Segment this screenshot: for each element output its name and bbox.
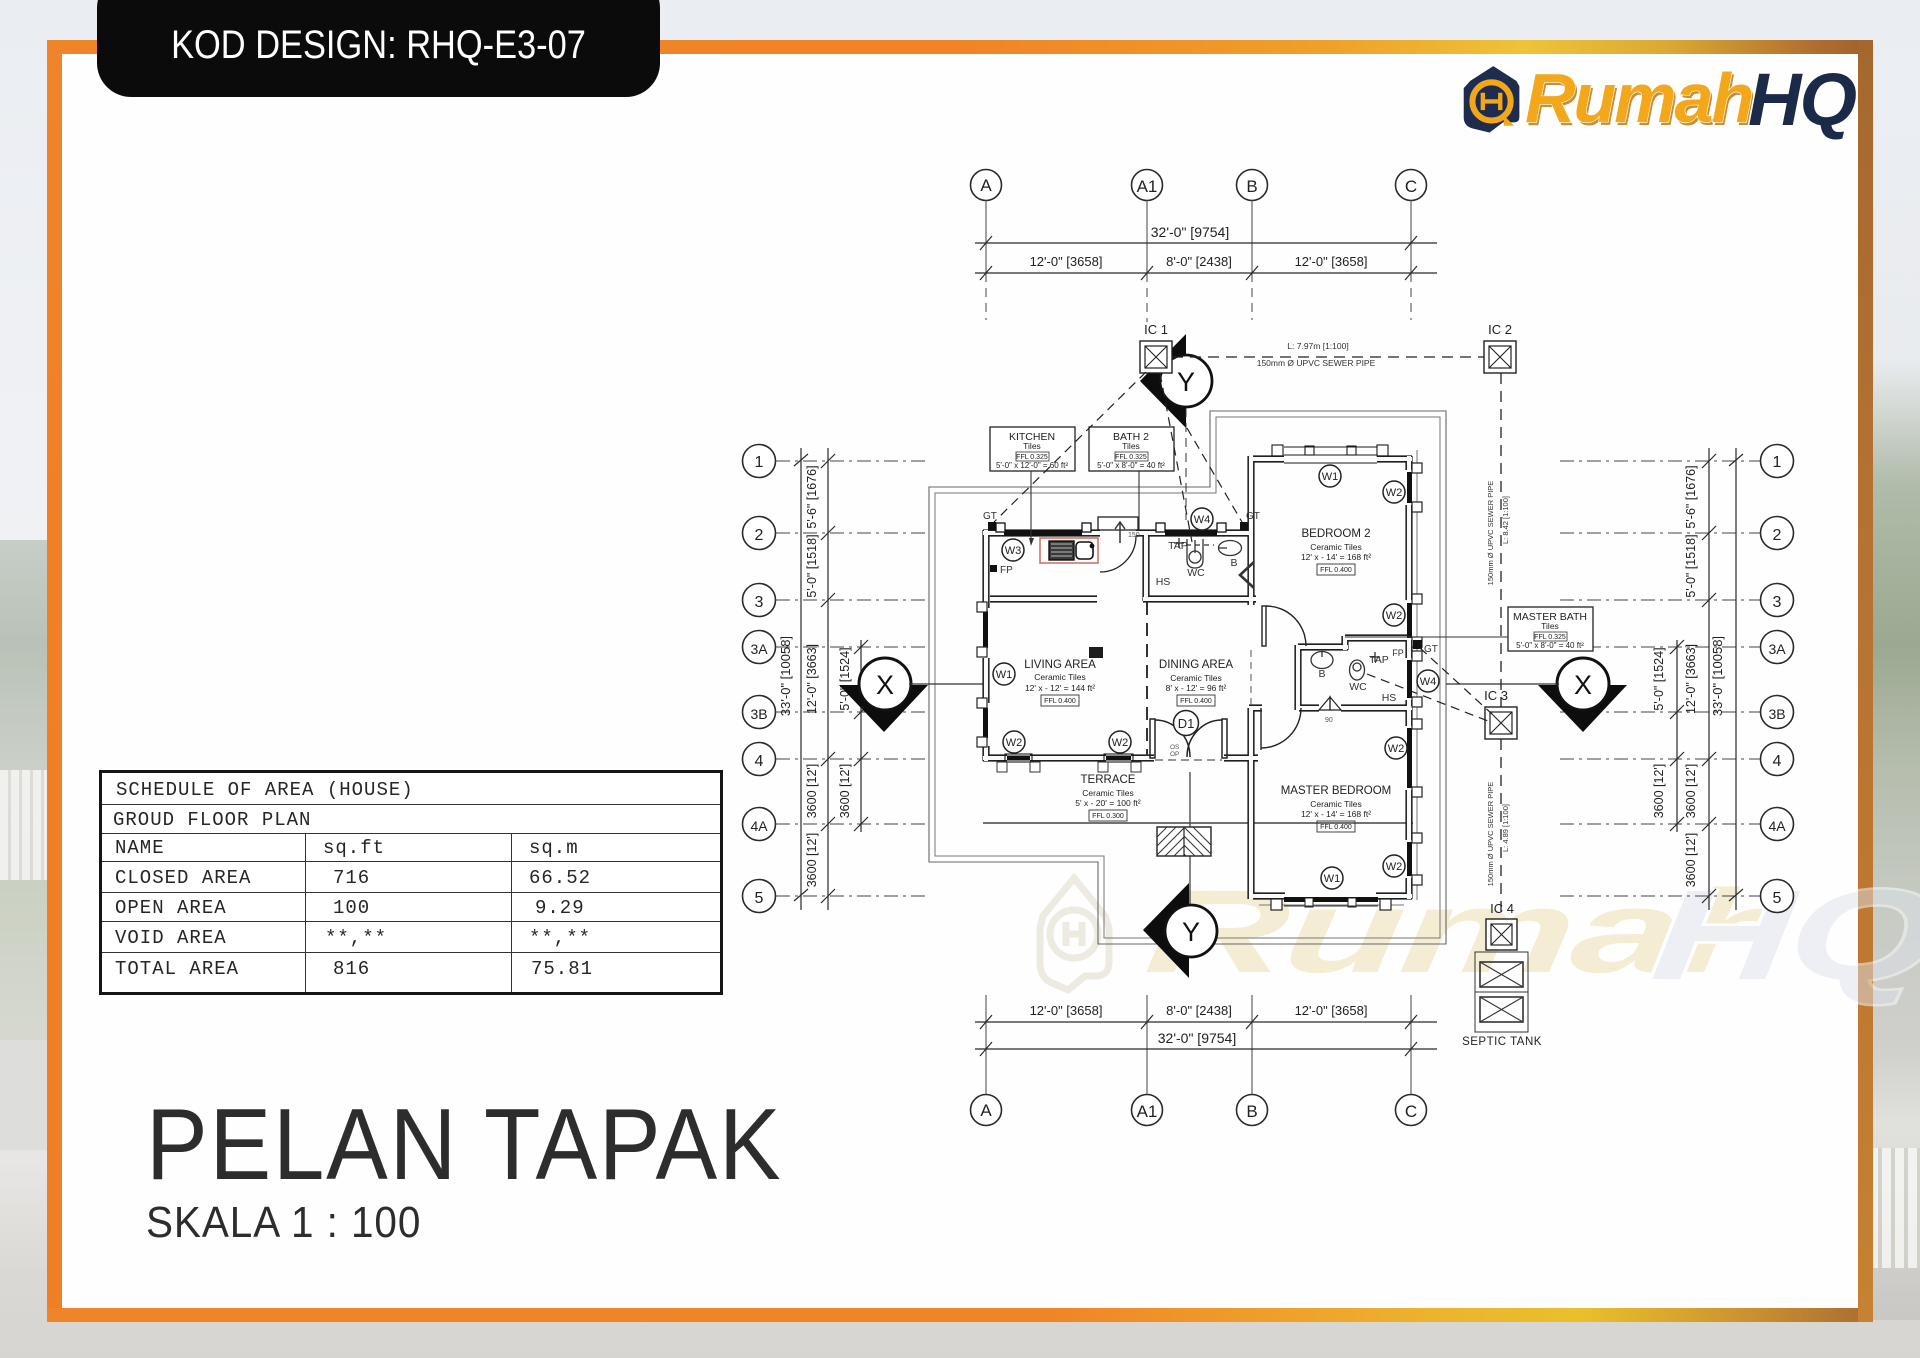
svg-text:3: 3 [755,594,764,611]
svg-text:12' x - 14' = 168 ft²: 12' x - 14' = 168 ft² [1301,809,1371,819]
svg-text:DINING AREA: DINING AREA [1159,659,1233,671]
svg-text:C: C [1405,177,1417,196]
svg-text:GT: GT [983,511,997,522]
svg-text:12' x - 12' = 144 ft²: 12' x - 12' = 144 ft² [1025,683,1095,693]
svg-text:5' x - 20' = 100 ft²: 5' x - 20' = 100 ft² [1075,798,1141,808]
svg-text:4: 4 [1773,753,1782,770]
svg-text:Y: Y [1177,367,1195,397]
svg-text:W2: W2 [1112,737,1129,749]
svg-text:33'-0" [10058]: 33'-0" [10058] [1710,636,1725,716]
svg-text:Tiles: Tiles [1122,441,1140,451]
svg-text:TERRACE: TERRACE [1081,774,1136,786]
svg-text:5'-0" [1524]: 5'-0" [1524] [838,647,852,710]
svg-text:IC 4: IC 4 [1490,901,1514,916]
svg-text:W4: W4 [1420,676,1437,688]
svg-text:5'-0" [1518]: 5'-0" [1518] [1684,534,1698,597]
svg-text:WC: WC [1349,681,1367,693]
svg-text:Ceramic Tiles: Ceramic Tiles [1170,673,1221,683]
svg-text:TAP: TAP [1369,654,1389,666]
svg-text:D1: D1 [1178,716,1195,731]
svg-text:FFL 0.325: FFL 0.325 [1115,454,1147,461]
svg-text:3600 [12']: 3600 [12'] [1684,764,1698,819]
svg-text:IC 1: IC 1 [1144,322,1168,337]
svg-text:OS: OS [1170,744,1180,751]
svg-text:5'-6" [1676]: 5'-6" [1676] [1684,465,1698,528]
svg-text:LIVING AREA: LIVING AREA [1024,659,1096,671]
svg-text:Ceramic Tiles: Ceramic Tiles [1310,799,1361,809]
svg-text:150mm Ø UPVC SEWER PIPE: 150mm Ø UPVC SEWER PIPE [1486,782,1495,887]
svg-text:Ceramic Tiles: Ceramic Tiles [1082,788,1133,798]
svg-text:Tiles: Tiles [1023,441,1041,451]
svg-text:W1: W1 [1322,471,1339,483]
svg-text:12' x - 14' = 168 ft²: 12' x - 14' = 168 ft² [1301,552,1371,562]
svg-text:150: 150 [1128,532,1140,539]
svg-text:3B: 3B [750,706,767,722]
svg-text:L: 4.89 [1:100]: L: 4.89 [1:100] [1501,804,1510,852]
svg-text:W2: W2 [1386,861,1403,873]
svg-text:A1: A1 [1137,1102,1158,1121]
svg-text:FP: FP [1392,648,1404,658]
svg-text:33'-0" [10058]: 33'-0" [10058] [778,636,793,716]
svg-text:L: 7.97m [1:100]: L: 7.97m [1:100] [1287,341,1348,351]
svg-text:3600 [12']: 3600 [12'] [1652,764,1666,819]
svg-text:SEPTIC TANK: SEPTIC TANK [1462,1036,1542,1048]
svg-text:32'-0" [9754]: 32'-0" [9754] [1158,1030,1236,1046]
svg-text:5'-0" x 12'-0" = 60 ft²: 5'-0" x 12'-0" = 60 ft² [996,461,1068,470]
svg-text:Ceramic Tiles: Ceramic Tiles [1310,542,1361,552]
svg-text:32'-0" [9754]: 32'-0" [9754] [1151,224,1229,240]
svg-text:A: A [980,176,992,195]
svg-text:150mm Ø UPVC SEWER PIPE: 150mm Ø UPVC SEWER PIPE [1486,481,1495,586]
svg-text:FP: FP [1000,565,1013,576]
svg-text:3A: 3A [1768,641,1786,657]
svg-text:B: B [1318,668,1325,680]
svg-text:B: B [1230,557,1237,569]
svg-text:4A: 4A [750,818,768,834]
svg-text:A1: A1 [1137,177,1158,196]
svg-text:2: 2 [755,527,764,544]
svg-text:5: 5 [1773,890,1782,907]
svg-text:Tiles: Tiles [1541,621,1559,631]
svg-text:W2: W2 [1006,737,1023,749]
svg-text:12'-0" [3658]: 12'-0" [3658] [1295,1003,1368,1018]
svg-text:5'-0" x 8'-0" = 40 ft²: 5'-0" x 8'-0" = 40 ft² [1097,461,1165,470]
svg-text:GT: GT [1246,511,1260,522]
svg-text:IC 2: IC 2 [1488,322,1512,337]
svg-text:W2: W2 [1386,610,1403,622]
svg-text:FFL 0.300: FFL 0.300 [1092,813,1124,820]
svg-text:4A: 4A [1768,818,1786,834]
svg-text:8'-0" [2438]: 8'-0" [2438] [1166,254,1232,269]
svg-text:90: 90 [1325,717,1333,724]
svg-text:3600 [12']: 3600 [12'] [838,764,852,819]
svg-text:4: 4 [755,753,764,770]
svg-text:W2: W2 [1386,487,1403,499]
svg-text:HS: HS [1156,576,1171,588]
svg-text:3: 3 [1773,594,1782,611]
svg-text:C: C [1405,1102,1417,1121]
svg-text:5'-0" [1524]: 5'-0" [1524] [1652,647,1666,710]
svg-text:L: 8.42 [1:100]: L: 8.42 [1:100] [1501,496,1510,544]
svg-text:FFL 0.325: FFL 0.325 [1016,454,1048,461]
svg-text:B: B [1246,177,1257,196]
svg-text:Ceramic Tiles: Ceramic Tiles [1034,672,1085,682]
svg-text:1: 1 [755,454,764,471]
svg-text:5'-6" [1676]: 5'-6" [1676] [805,465,819,528]
svg-text:B: B [1246,1102,1257,1121]
svg-text:12'-0" [3663]: 12'-0" [3663] [805,644,819,714]
svg-text:X: X [876,670,894,700]
svg-text:FFL 0.400: FFL 0.400 [1320,824,1352,831]
svg-text:12'-0" [3658]: 12'-0" [3658] [1030,254,1103,269]
svg-text:FFL 0.400: FFL 0.400 [1320,567,1352,574]
svg-text:5: 5 [755,890,764,907]
svg-text:150mm Ø UPVC SEWER PIPE: 150mm Ø UPVC SEWER PIPE [1257,358,1376,368]
svg-text:FFL 0.325: FFL 0.325 [1534,634,1566,641]
svg-text:12'-0" [3658]: 12'-0" [3658] [1295,254,1368,269]
svg-text:WC: WC [1187,567,1205,579]
svg-text:BEDROOM 2: BEDROOM 2 [1301,528,1370,540]
svg-text:W3: W3 [1005,545,1022,557]
svg-text:X: X [1574,670,1592,700]
svg-text:A: A [980,1101,992,1120]
svg-text:TAP: TAP [1168,540,1188,552]
svg-text:FFL 0.400: FFL 0.400 [1180,698,1212,705]
svg-text:3B: 3B [1768,706,1785,722]
svg-text:3600 [12']: 3600 [12'] [805,764,819,819]
svg-text:5'-0" [1518]: 5'-0" [1518] [805,534,819,597]
svg-text:8'-0" [2438]: 8'-0" [2438] [1166,1003,1232,1018]
svg-text:FFL 0.400: FFL 0.400 [1044,698,1076,705]
svg-text:Y: Y [1182,917,1200,947]
svg-text:12'-0" [3663]: 12'-0" [3663] [1684,644,1698,714]
svg-text:1: 1 [1773,454,1782,471]
svg-text:2: 2 [1773,527,1782,544]
svg-text:IC 3: IC 3 [1484,688,1508,703]
svg-text:W4: W4 [1194,514,1211,526]
svg-text:3A: 3A [750,641,768,657]
svg-text:12'-0" [3658]: 12'-0" [3658] [1030,1003,1103,1018]
svg-text:5'-0" x 8'-0" = 40 ft²: 5'-0" x 8'-0" = 40 ft² [1516,641,1584,650]
svg-text:HS: HS [1382,692,1397,704]
svg-text:3600 [12']: 3600 [12'] [805,833,819,888]
svg-text:W1: W1 [996,669,1013,681]
svg-text:W1: W1 [1324,873,1341,885]
svg-text:W2: W2 [1388,743,1405,755]
svg-text:MASTER BEDROOM: MASTER BEDROOM [1281,785,1392,797]
svg-text:8' x - 12' = 96 ft²: 8' x - 12' = 96 ft² [1166,683,1227,693]
svg-text:3600 [12']: 3600 [12'] [1684,833,1698,888]
svg-text:OP: OP [1170,751,1179,758]
